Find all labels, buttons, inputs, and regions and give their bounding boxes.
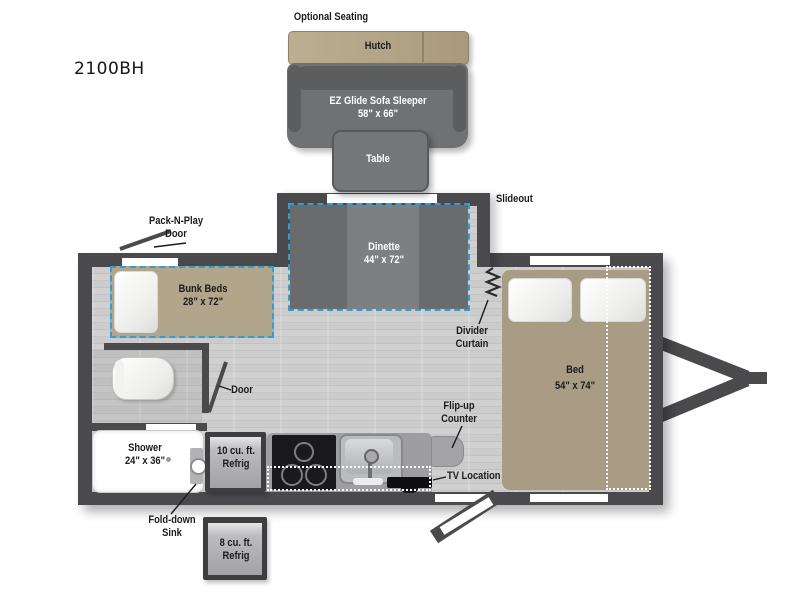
dinette-label: Dinette 44" x 72": [364, 241, 404, 267]
shower-label: Shower 24" x 36": [125, 442, 165, 468]
bed-label-size: 54" x 74": [555, 378, 595, 394]
dinette-label-size: 44" x 72": [364, 254, 404, 267]
shower-label-name: Shower: [125, 442, 165, 455]
pack-n-play-label-line1: Pack-N-Play: [149, 215, 203, 228]
refrig10-label: 10 cu. ft. Refrig: [217, 445, 255, 471]
divider-curtain-symbol: [487, 268, 499, 296]
tv-location-label: TV Location: [447, 470, 501, 483]
floorplan-model-title: 2100BH: [74, 59, 145, 79]
fold-down-sink-label: Fold-down Sink: [148, 514, 195, 540]
door-pointer-line: [219, 386, 231, 390]
divider-curtain-label: Divider Curtain: [456, 325, 489, 351]
shower-label-size: 24" x 36": [125, 455, 165, 468]
sofa-label: EZ Glide Sofa Sleeper 58" x 66": [329, 95, 426, 121]
refrig10-label-size: 10 cu. ft.: [217, 445, 255, 458]
sofa-label-size: 58" x 66": [329, 108, 426, 121]
tv-pointer-line: [433, 477, 446, 480]
entry-door-leaf: [442, 501, 491, 531]
refrig8-label-name: Refrig: [220, 550, 253, 563]
sofa-label-name: EZ Glide Sofa Sleeper: [329, 95, 426, 108]
door-label: Door: [231, 384, 253, 397]
divider-pointer-line: [479, 300, 488, 324]
refrig8-label: 8 cu. ft. Refrig: [220, 537, 253, 563]
annotation-lines: [0, 0, 800, 600]
optional-seating-label: Optional Seating: [294, 11, 368, 24]
flip-up-label-line2: Counter: [441, 413, 477, 426]
floorplan-canvas: 2100BH Optional Seating Hutch EZ Glide S…: [0, 0, 800, 600]
refrig8-label-size: 8 cu. ft.: [220, 537, 253, 550]
flip-up-counter-label: Flip-up Counter: [441, 400, 477, 426]
bunk-label-name: Bunk Beds: [179, 283, 228, 296]
flip-up-pointer-line: [452, 426, 462, 448]
refrig10-label-name: Refrig: [217, 458, 255, 471]
bunk-beds-label: Bunk Beds 28" x 72": [179, 283, 228, 309]
divider-label-line1: Divider: [456, 325, 489, 338]
dinette-label-name: Dinette: [364, 241, 404, 254]
flip-up-label-line1: Flip-up: [441, 400, 477, 413]
hutch-label: Hutch: [365, 40, 391, 53]
bunk-label-size: 28" x 72": [179, 296, 228, 309]
pack-n-play-label: Pack-N-Play Door: [149, 215, 203, 241]
fold-down-label-line1: Fold-down: [148, 514, 195, 527]
fold-down-label-line2: Sink: [148, 527, 195, 540]
slideout-label: Slideout: [496, 193, 533, 206]
pack-n-play-label-line2: Door: [149, 228, 203, 241]
divider-label-line2: Curtain: [456, 338, 489, 351]
table-label: Table: [366, 153, 390, 166]
fold-down-pointer-line: [171, 484, 196, 514]
bed-label: Bed 54" x 74": [555, 362, 595, 394]
pack-n-play-pointer-line: [154, 243, 186, 247]
bed-label-name: Bed: [555, 362, 595, 378]
